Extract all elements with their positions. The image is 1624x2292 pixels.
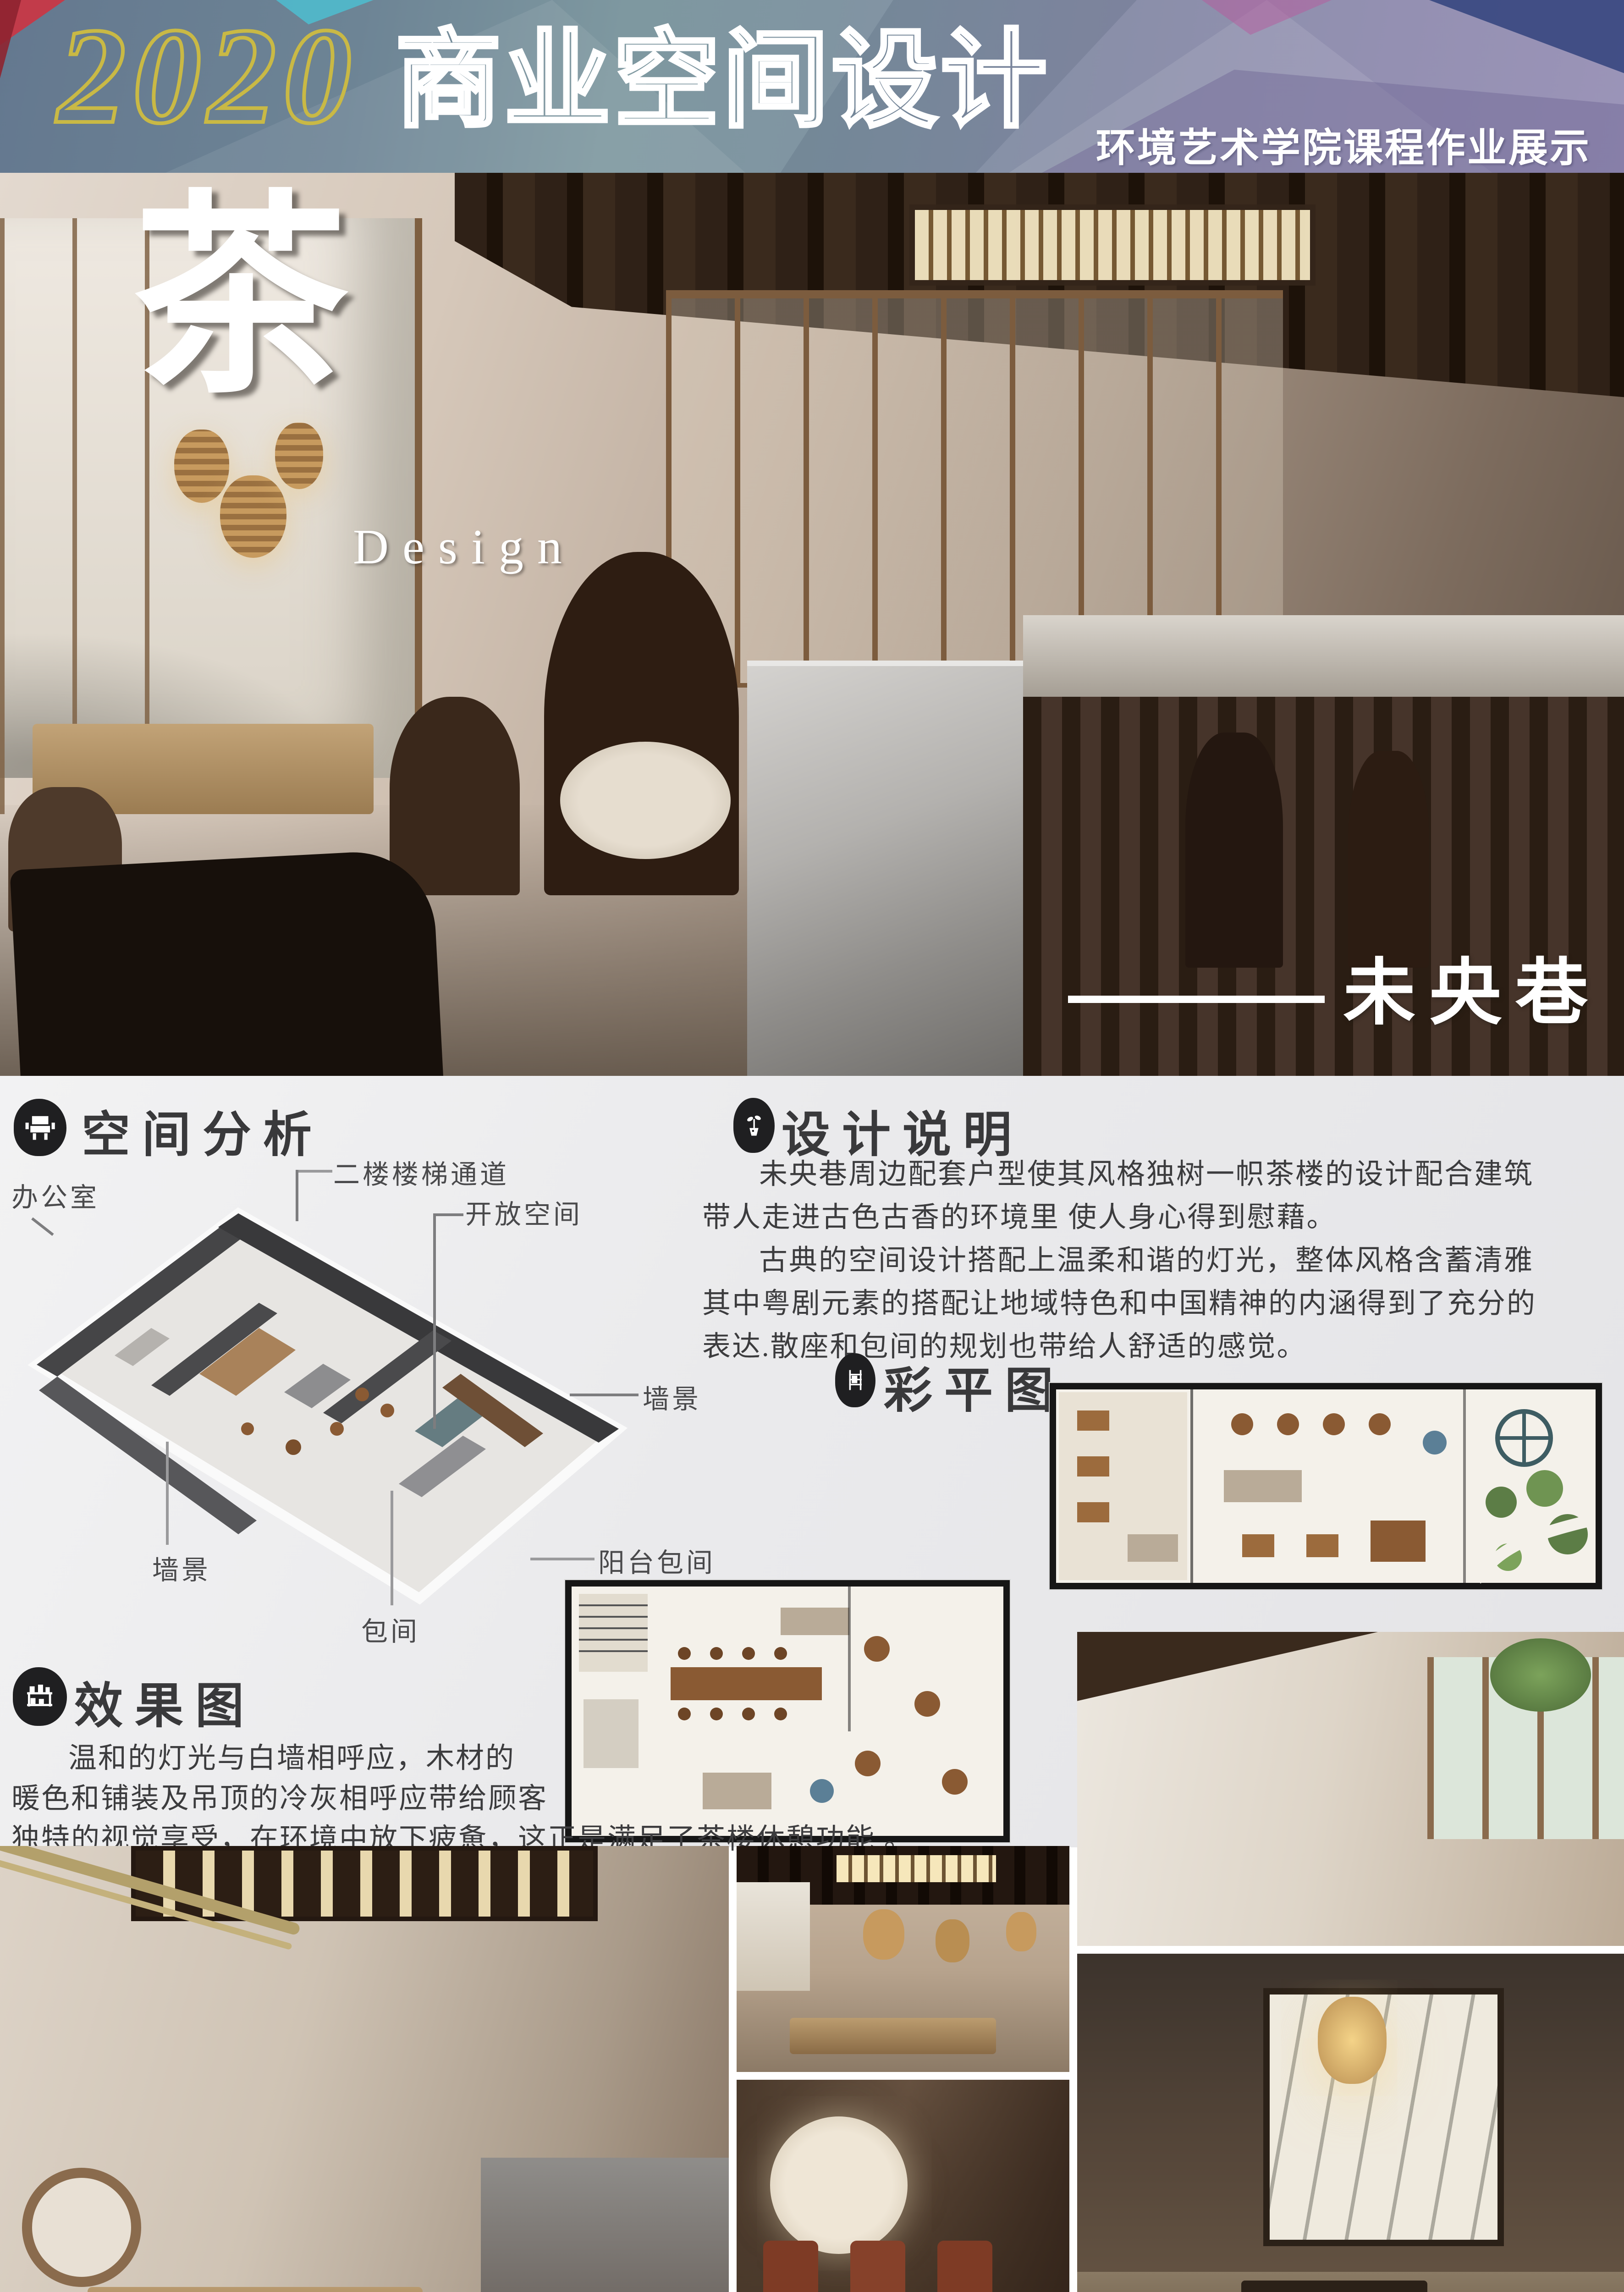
axon-label-open-space: 开放空间 [465,1193,583,1231]
renders-line: 暖色和铺装及吊顶的冷灰相呼应带给顾客 [11,1779,1002,1819]
hero-marble-counter [747,661,1023,1076]
photo-plants [1490,1638,1591,1712]
design-notes-line: 古典的空间设计搭配上温柔和谐的灯光，整体风格含蓄清雅 [702,1239,1619,1282]
render-photo-tatami-room [1077,1954,1624,2292]
hero-pendant-lamp [174,430,229,503]
photo-skylight [131,1846,598,1921]
axon-label-private-room: 包间 [361,1610,420,1648]
photo-moon-window [22,2168,141,2287]
photo-cabinet [1132,1808,1361,1915]
photo-pendant-lamps [863,1909,904,1960]
design-notes-line: 未央巷周边配套户型使其风格独树一帜茶楼的设计配合建筑 [702,1153,1619,1196]
poster-title: 商业空间设计 [395,22,1050,139]
photo-lantern [1318,1997,1387,2084]
photo-window [737,1882,810,1991]
leader-line [391,1491,393,1605]
design-notes-seal [733,1098,775,1153]
design-notes-line: 带人走进古色古香的环境里 使人身心得到慰藉。 [702,1196,1619,1239]
render-photo-bamboo-lounge [0,1846,729,2292]
leader-line [433,1213,463,1216]
floor-plan-level1 [1050,1383,1602,1589]
renders-heading: 效果图 [74,1666,256,1737]
hero-design-label: Design [353,519,576,576]
photo-stools [763,2241,818,2292]
photo-low-table [1241,2281,1427,2292]
design-notes-paragraph: 未央巷周边配套户型使其风格独树一帜茶楼的设计配合建筑 带人走进古色古香的环境里 … [702,1153,1619,1368]
seal-plant-icon [741,1108,767,1142]
hero-pendant-lamp [275,423,323,489]
axon-label-wall-bottom: 墙景 [152,1548,211,1587]
photo-skylight [837,1855,996,1882]
leader-line [433,1213,436,1429]
hero-chair [390,697,519,895]
render-photo-dining-area [737,1846,1069,2072]
color-plan-seal [835,1353,875,1407]
hero-stool [1185,733,1283,967]
renders-line: 温和的灯光与白墙相呼应，木材的 [11,1738,1002,1779]
axon-label-stair: 二楼楼梯通道 [333,1153,509,1191]
leader-line [530,1558,595,1560]
renders-paragraph: 温和的灯光与白墙相呼应，木材的 暖色和铺装及吊顶的冷灰相呼应带给顾客 独特的视觉… [11,1738,1002,1859]
render-photo-tearoom-bright [1077,1632,1624,1946]
hero-bar-counter [1023,615,1624,696]
axon-label-balcony-room: 阳台包间 [598,1541,716,1580]
brand-underline [1068,996,1325,1003]
hero-tea-character: 茶 [133,191,348,407]
hero-foreground-armchair [10,848,445,1076]
render-photo-bar-corridor [737,2080,1069,2292]
hero-photo-teahouse: 茶 Design 未央巷 [0,173,1624,1076]
poster-subtitle: 环境艺术学院课程作业展示 [1096,116,1591,173]
photo-tea-table [88,2287,423,2292]
brand-name: 未央巷 [1343,934,1602,1039]
photo-counter [481,2158,729,2292]
photo-roof-edge [1077,1632,1378,1701]
leader-line [570,1394,639,1396]
poster-header: 2020 商业空间设计 环境艺术学院课程作业展示 [0,0,1624,174]
design-notes-line: 其中粤剧元素的搭配让地域特色和中国精神的内涵得到了充分的 [702,1282,1619,1325]
photo-long-table [790,2018,996,2054]
leader-line [296,1170,332,1173]
seal-shelf-icon [23,1678,56,1714]
color-plan-heading: 彩平图 [884,1351,1065,1421]
axon-label-wall-right: 墙景 [643,1377,701,1416]
seal-ladder-icon [843,1363,868,1397]
renders-seal [13,1667,67,1726]
hero-cushion [560,742,731,859]
poster-year: 2020 [57,4,358,148]
leader-line [296,1170,298,1221]
axon-label-office: 办公室 [11,1176,99,1214]
photo-moon-window [770,2116,908,2254]
hero-skylight [909,204,1316,286]
leader-line [166,1442,169,1545]
hero-pendant-lamp [220,475,286,558]
